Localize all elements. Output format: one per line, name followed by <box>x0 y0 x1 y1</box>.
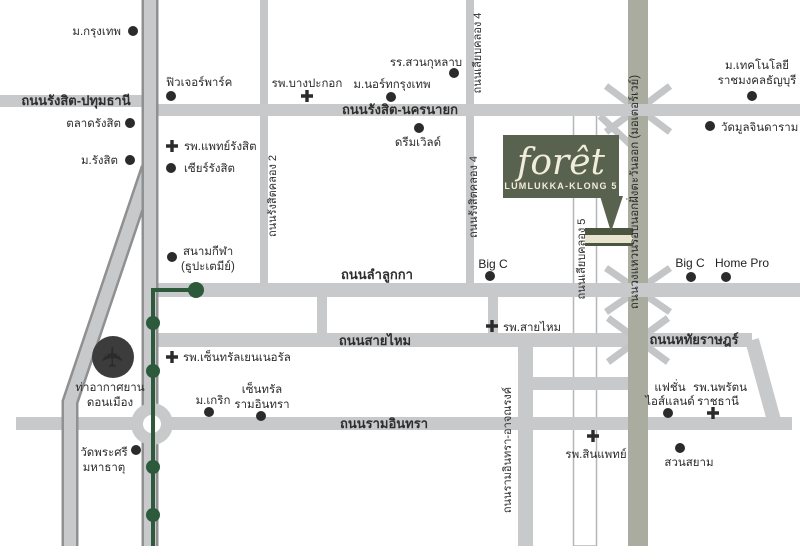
label-central-general-hospital: รพ.เซ็นทรัลเยนเนอรัล <box>183 349 291 364</box>
project-site-strip-top <box>585 228 633 235</box>
location-map: forêt LUMLUKKA-KLONG 5 ถนนรังสิต-ปทุมธาน… <box>0 0 800 546</box>
transit-station-dot <box>146 460 160 474</box>
project-site-strip-mid <box>585 235 633 243</box>
road-label-hathairat: ถนนหทัยราษฎร์ <box>650 332 739 348</box>
label-home-pro: Home Pro <box>715 256 769 270</box>
poi-dot-future-park <box>166 91 176 101</box>
map-canvas: forêt LUMLUKKA-KLONG 5 ถนนรังสิต-ปทุมธาน… <box>0 0 800 546</box>
logo-pointer-tail <box>600 196 623 232</box>
road-rangsit-nakhonnayok <box>144 104 800 116</box>
poi-dot-wat-phrasri <box>131 445 141 455</box>
poi-dot-dream-world <box>414 123 424 133</box>
poi-dot-rangsit-market <box>125 118 135 128</box>
label-nopparat-line2: ราชธานี <box>697 395 739 408</box>
label-sinphaet-hospital: รพ.สินแพทย์ <box>565 447 626 461</box>
label-central-ramindra-line2: รามอินทรา <box>234 398 289 411</box>
label-stadium-line2: (ธูปะเตมีย์) <box>181 259 235 273</box>
hospital-cross-icon-bangpakok <box>301 90 313 102</box>
label-siam-park: สวนสยาม <box>664 457 713 469</box>
poi-dot-suankularb <box>449 68 459 78</box>
road-label-lamlukka: ถนนลำลูกกา <box>341 267 413 283</box>
poi-dot-siam-park <box>675 443 685 453</box>
label-saimai-hospital: รพ.สายไหม <box>503 321 561 334</box>
label-fashion-island-line1: แฟชั่น <box>654 379 685 394</box>
poi-dot-north-bangkok-univ <box>386 92 396 102</box>
poi-dot-big-c-klong5 <box>485 271 495 281</box>
road-label-outer-ring-motorway: ถนนวงแหวนรอบนอกฝั่งตะวันออก (มอเตอร์เวย์… <box>626 75 641 309</box>
road-expressway <box>518 347 533 546</box>
poi-dot-krirk-univ <box>204 407 214 417</box>
airplane-icon: ✈ <box>98 345 129 368</box>
label-nopparat-line1: รพ.นพรัตน <box>693 382 747 394</box>
label-paet-rangsit-hospital: รพ.แพทย์รังสิต <box>184 139 257 153</box>
label-dream-world: ดรีมเวิลด์ <box>395 135 441 149</box>
road-label-rangsit-nakhonnayok: ถนนรังสิต-นครนายก <box>342 102 458 117</box>
road-label-ramindra-atnarong: ถนนรามอินทรา-อาจณรงค์ <box>501 387 514 513</box>
poi-dot-wat-muljindaram <box>705 121 715 131</box>
label-don-mueang-line2: ดอนเมือง <box>87 396 133 409</box>
transit-station-dot <box>146 508 160 522</box>
poi-dot-fashion-island <box>663 408 673 418</box>
label-suankularb-school: รร.สวนกุหลาบ <box>390 57 462 69</box>
poi-dot-big-c-east <box>686 272 696 282</box>
label-stadium-line1: สนามกีฬา <box>183 245 233 258</box>
road-label-ramindra: ถนนรามอินทรา <box>340 416 428 431</box>
label-fashion-island-line2: ไอส์แลนด์ <box>644 394 695 408</box>
label-bangpakok-hospital: รพ.บางปะกอก <box>272 78 343 90</box>
poi-dot-rmutt <box>747 91 757 101</box>
label-wat-muljindaram: วัดมูลจินดาราม <box>721 121 798 134</box>
road-label-liab-klong4: ถนนเลียบคลอง 4 <box>471 13 484 94</box>
label-bangkok-univ: ม.กรุงเทพ <box>72 26 121 38</box>
poi-dot-home-pro <box>721 272 731 282</box>
road-label-rangsit-pathumthani: ถนนรังสิต-ปทุมธานี <box>21 93 130 109</box>
poi-dot-bangkok-univ <box>128 26 138 36</box>
project-site-strip-bottom <box>585 243 633 246</box>
poi-dot-zeer-rangsit <box>166 163 176 173</box>
transit-station-dot <box>146 364 160 378</box>
poi-dot-central-ramindra <box>256 411 266 421</box>
label-krirk-univ: ม.เกริก <box>196 394 231 407</box>
label-future-park: ฟิวเจอร์พาร์ค <box>166 75 232 89</box>
label-rangsit-market: ตลาดรังสิต <box>66 117 121 130</box>
road-label-rangsit-klong2: ถนนรังสิตคลอง 2 <box>267 155 279 237</box>
road-rangsit-klong2 <box>260 0 268 290</box>
foret-logo-text: forêt <box>514 142 606 183</box>
road-lamlukka <box>156 283 800 297</box>
label-big-c-klong5: Big C <box>478 257 508 271</box>
label-zeer-rangsit: เซียร์รังสิต <box>184 161 235 175</box>
hospital-cross-icon-paet-rangsit <box>166 140 178 152</box>
road-label-saimai: ถนนสายไหม <box>339 332 411 348</box>
label-don-mueang-line1: ท่าอากาศยาน <box>75 382 144 394</box>
label-wat-phrasri-line1: วัดพระศรี <box>80 446 127 459</box>
poi-dot-stadium <box>167 252 177 262</box>
label-big-c-east: Big C <box>675 256 705 270</box>
road-connector-1 <box>317 290 327 338</box>
label-rmutt-line2: ราชมงคลธัญบุรี <box>718 74 797 87</box>
label-rmutt-line1: ม.เทคโนโลยี <box>725 58 789 72</box>
foret-logo-subtitle: LUMLUKKA-KLONG 5 <box>504 181 617 191</box>
label-north-bangkok-univ: ม.นอร์ทกรุงเทพ <box>353 77 430 91</box>
road-hathairat-diagonal <box>752 340 775 424</box>
transit-station-dot <box>188 282 204 298</box>
transit-station-dot <box>146 316 160 330</box>
label-wat-phrasri-line2: มหาธาตุ <box>83 462 126 474</box>
road-label-liab-klong5: ถนนเลียบคลอง 5 <box>575 219 588 300</box>
label-rangsit-univ: ม.รังสิต <box>81 154 118 167</box>
hospital-cross-icon-central-general <box>166 351 178 363</box>
label-central-ramindra-line1: เซ็นทรัล <box>242 381 282 396</box>
road-label-rangsit-klong4: ถนนรังสิตคลอง 4 <box>468 156 480 238</box>
poi-dot-rangsit-univ <box>125 155 135 165</box>
